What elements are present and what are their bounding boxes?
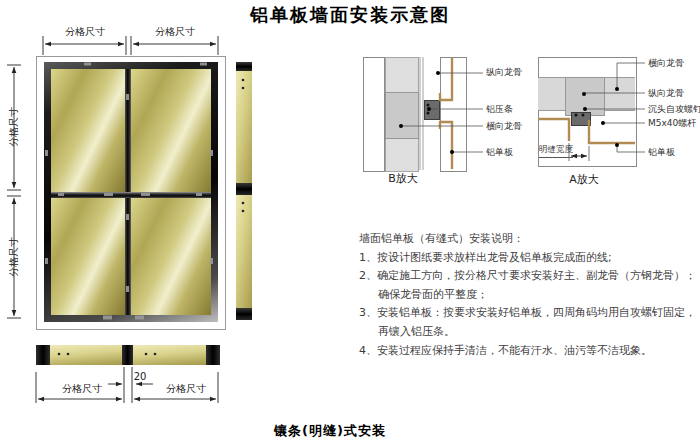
detail-b-caption: B放大 bbox=[378, 171, 428, 186]
dim-label-bottom-left: 分格尺寸 bbox=[52, 382, 112, 396]
notes-line: 4、安装过程应保持手清洁，不能有汗水、油污等不洁现象。 bbox=[359, 342, 699, 361]
detail-a-label-5: 铝单板 bbox=[648, 147, 675, 158]
strip-panel bbox=[236, 71, 252, 183]
panel-cell-top-left bbox=[51, 69, 125, 192]
detail-a-vertical-keel bbox=[565, 77, 605, 116]
dim-label-side-bottom: 分格尺寸 bbox=[7, 228, 19, 286]
strip-panel bbox=[50, 345, 122, 365]
detail-a-label-3: 沉头自攻螺钉 bbox=[648, 104, 700, 115]
detail-a-label-1: 横向龙骨 bbox=[648, 58, 684, 69]
panel-cell-bottom-right bbox=[131, 198, 211, 315]
installation-notes: 墙面铝单板（有缝式）安装说明： 1、按设计图纸要求放样出龙骨及铝单板完成面的线;… bbox=[359, 230, 699, 360]
dim-label-top-right: 分格尺寸 bbox=[145, 25, 205, 39]
footer-caption: 镶条(明缝)式安装 bbox=[230, 422, 430, 440]
page-title: 铝单板墙面安装示意图 bbox=[0, 3, 700, 27]
strip-joint bbox=[206, 345, 220, 365]
strip-joint bbox=[122, 345, 133, 365]
detail-b-label-2: 铝压条 bbox=[486, 104, 513, 115]
detail-b-label-3: 横向龙骨 bbox=[486, 121, 522, 132]
panel-cell-bottom-left bbox=[51, 198, 125, 315]
dim-label-bottom-right: 分格尺寸 bbox=[156, 382, 216, 396]
dim-label-side-top: 分格尺寸 bbox=[7, 98, 19, 156]
strip-joint bbox=[36, 345, 50, 365]
detail-b-label-1: 纵向龙骨 bbox=[486, 67, 522, 78]
installation-diagram-page: 铝单板墙面安装示意图 分格尺寸 分格尺寸 分格尺寸 分格尺 bbox=[0, 0, 700, 446]
detail-b-horizontal-keel bbox=[385, 92, 419, 139]
strip-joint bbox=[236, 183, 252, 195]
notes-line: 3、安装铝单板：按要求安装好铝单板，四周角码均用自攻螺钉固定， bbox=[359, 304, 699, 323]
notes-line: 墙面铝单板（有缝式）安装说明： bbox=[359, 230, 699, 249]
detail-b-wall-column bbox=[363, 57, 385, 172]
dim-label-gap: 20 bbox=[130, 371, 150, 382]
detail-b-press-strip bbox=[424, 100, 440, 120]
seam-width-label: 明缝宽度 bbox=[539, 144, 573, 158]
notes-line: 1、按设计图纸要求放样出龙骨及铝单板完成面的线; bbox=[359, 249, 699, 268]
detail-a-label-4: M5x40螺杆 bbox=[648, 118, 696, 129]
detail-b-label-4: 铝单板 bbox=[486, 147, 513, 158]
detail-b-face-lines bbox=[420, 57, 423, 170]
dim-label-top-left: 分格尺寸 bbox=[55, 25, 115, 39]
mullion-horizontal bbox=[51, 192, 211, 198]
panel-cell-top-right bbox=[131, 69, 211, 192]
detail-b-vertical-keel bbox=[440, 57, 467, 172]
notes-line: 2、确定施工方向，按分格尺寸要求安装好主、副龙骨（方钢龙骨）； bbox=[359, 267, 699, 286]
strip-panel bbox=[133, 345, 206, 365]
strip-joint bbox=[236, 308, 252, 320]
detail-a-label-2: 纵向龙骨 bbox=[648, 88, 684, 99]
strip-joint bbox=[236, 62, 252, 71]
strip-panel bbox=[236, 195, 252, 308]
detail-a-caption: A放大 bbox=[559, 172, 609, 187]
detail-a-screw-block bbox=[571, 112, 591, 126]
notes-line: 确保龙骨面的平整度； bbox=[359, 286, 699, 305]
notes-line: 再镶入铝压条。 bbox=[359, 323, 699, 342]
